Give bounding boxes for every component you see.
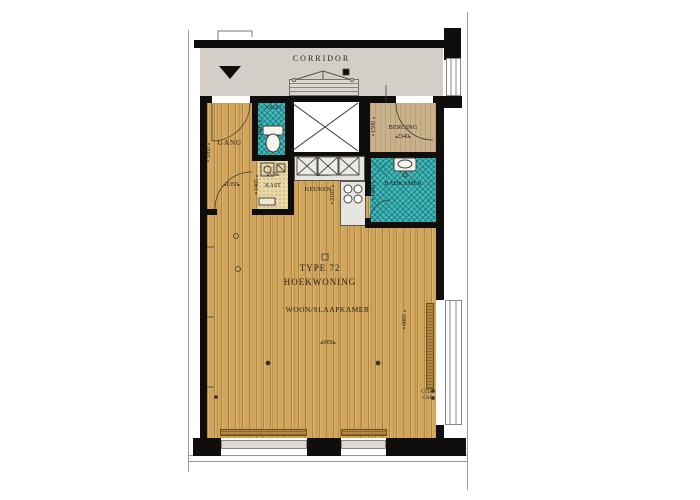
interior-sill-b (341, 429, 387, 436)
bottom-wall-c (386, 438, 466, 456)
wall-toilet-bottom (252, 155, 292, 161)
facade-glazing-line-2 (188, 461, 467, 462)
badkamer-label: BADKAMER (372, 181, 434, 188)
berging-label: BERGING (372, 125, 434, 132)
wall-gang-bottom (207, 209, 217, 215)
right-interior-sill (426, 303, 434, 389)
wall-berging-bottom (365, 152, 444, 158)
bottom-wall-b (307, 438, 341, 456)
top-right-window (446, 58, 461, 96)
right-wall-corner (436, 96, 462, 108)
berging-height-dim: 1500 (371, 108, 377, 146)
top-dimension-bracket (218, 31, 252, 40)
kast-width-dim: 920 (259, 172, 287, 178)
living-room-label: WOON/SLAAPKAMER (275, 306, 380, 314)
corridor-label: CORRIDOR (200, 55, 443, 63)
living-height-dim: 6865 (402, 300, 408, 340)
toilet-height-dim: 1485 (258, 112, 264, 148)
gang-height-dim: 3000 (206, 135, 212, 171)
right-window (445, 300, 462, 425)
unit-type-label: TYPE 72 (270, 264, 370, 273)
kast-height-dim: 1465 (254, 168, 260, 202)
living-width-dim: 6950 (303, 340, 353, 346)
kitchen-counter-right (340, 181, 366, 226)
bottom-window-sill-a (221, 440, 307, 449)
right-wall-lower (436, 425, 444, 438)
floor-plan: CORRIDOR GANG TOILET KAST KEUKEN BERGING… (0, 0, 700, 500)
ctd-label: CTD (421, 390, 431, 395)
site-line-right (467, 12, 468, 490)
entry-arrow-icon (219, 66, 241, 79)
top-right-wall-block (444, 28, 461, 60)
toilet-label: TOILET (258, 106, 288, 111)
gang-width-dim: 1350 (212, 182, 252, 188)
wall-kast-bottom (252, 209, 294, 215)
keuken-height-dim: 2105 (330, 178, 336, 212)
badkamer-height-dim: 1400 (371, 172, 377, 210)
wall-badkamer-bottom (365, 222, 444, 228)
badkamer-floor (370, 158, 436, 222)
wall-kast-kitchen (288, 96, 294, 215)
wall-berging-left (365, 96, 370, 158)
right-wall-upper (436, 96, 444, 300)
kast-label: KAST (258, 183, 288, 189)
unit-name-label: HOEKWONING (270, 278, 370, 287)
corridor-stairs (289, 79, 359, 96)
corridor-top-wall (194, 40, 444, 48)
bottom-window-sill-b (341, 440, 386, 449)
gang-label: GANG (210, 140, 250, 147)
cai-outlet-tag: CAI (415, 396, 431, 403)
site-line-left (188, 30, 189, 472)
cai-label: CAI (422, 396, 431, 401)
interior-sill-a (220, 429, 307, 436)
elevator-shaft (285, 96, 365, 158)
berging-width-dim: 2340 (372, 134, 434, 140)
bottom-wall-a (193, 438, 221, 456)
